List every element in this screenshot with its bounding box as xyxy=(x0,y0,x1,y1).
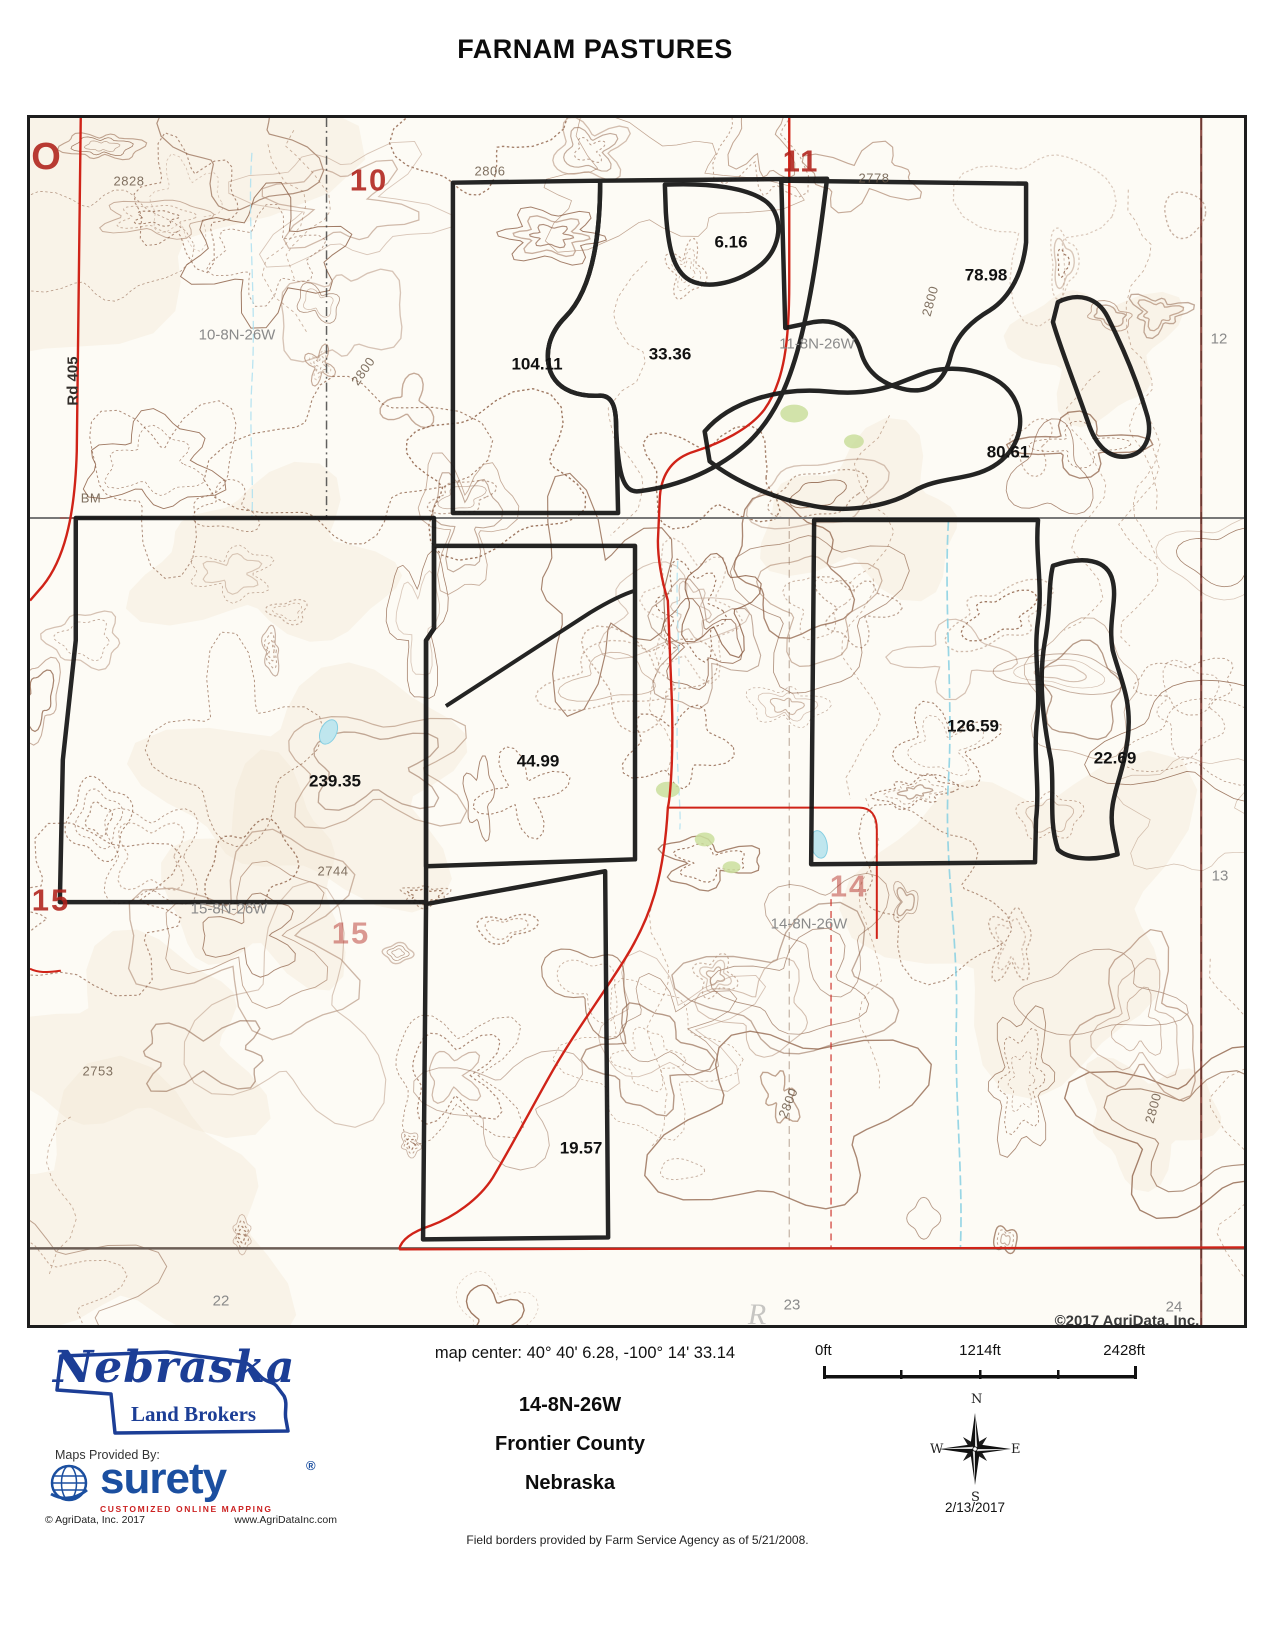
acreage-label: 80.61 xyxy=(987,444,1030,461)
elev-label: 2744 xyxy=(318,865,349,878)
nebraska-land-brokers-logo: Nebraska Land Brokers xyxy=(45,1340,330,1446)
map-label-layer: 104.1133.366.1678.9880.61126.5922.6944.9… xyxy=(30,118,1244,1325)
secnum-label: O xyxy=(31,138,63,176)
township-label: 15-8N-26W xyxy=(191,902,268,917)
acreage-label: 78.98 xyxy=(965,267,1008,284)
scale-label-max: 2428ft xyxy=(1103,1342,1145,1359)
township-label: 10-8N-26W xyxy=(199,328,276,343)
agridata-copyright: © AgriData, Inc. 2017 xyxy=(45,1514,145,1526)
scale-label-0: 0ft xyxy=(815,1342,832,1359)
compass-north-label: N xyxy=(971,1392,982,1407)
elev-label: 2800 xyxy=(776,1086,800,1120)
elev-label: 2828 xyxy=(114,175,145,188)
surety-logo: surety ® xyxy=(48,1462,338,1504)
scale-bar: 0ft 1214ft 2428ft xyxy=(815,1342,1145,1388)
acreage-label: 19.57 xyxy=(560,1140,603,1157)
secnum-label: 15 xyxy=(332,918,370,949)
surety-tagline: CUSTOMIZED ONLINE MAPPING xyxy=(100,1504,273,1514)
township-label: 14-8N-26W xyxy=(771,917,848,932)
location-block: 14-8N-26W Frontier County Nebraska xyxy=(420,1394,720,1511)
scale-label-mid: 1214ft xyxy=(959,1342,1001,1359)
map-date: 2/13/2017 xyxy=(915,1500,1035,1515)
scale-bar-graphic xyxy=(815,1364,1145,1382)
compass-star-icon xyxy=(930,1392,1020,1504)
field-borders-footnote: Field borders provided by Farm Service A… xyxy=(0,1533,1275,1547)
nebraska-logo-subtitle: Land Brokers xyxy=(131,1402,256,1427)
acreage-label: 239.35 xyxy=(309,773,361,790)
compass-rose: N W E S xyxy=(930,1392,1020,1504)
township-label: 22 xyxy=(213,1294,230,1309)
map-frame: 104.1133.366.1678.9880.61126.5922.6944.9… xyxy=(27,115,1247,1328)
township-label: 12 xyxy=(1211,332,1228,347)
township-label: 23 xyxy=(784,1298,801,1313)
secnum-label: 14 xyxy=(830,871,868,902)
township-label: 13 xyxy=(1212,869,1229,884)
elev-label: 2800 xyxy=(920,284,941,317)
acreage-label: 22.69 xyxy=(1094,750,1137,767)
acreage-label: 44.99 xyxy=(517,753,560,770)
secnum-label: 11 xyxy=(783,146,820,177)
globe-icon xyxy=(48,1462,92,1506)
page-title: FARNAM PASTURES xyxy=(0,34,1190,65)
elev-label: 2800 xyxy=(349,355,377,388)
township-range-label: 14-8N-26W xyxy=(420,1394,720,1417)
township-label: 11-8N-26W xyxy=(779,337,855,352)
elev-label: 2806 xyxy=(475,165,506,178)
secnum-label: 15 xyxy=(32,885,70,916)
compass-east-label: E xyxy=(1011,1442,1021,1457)
mapcopy-label: ©2017 AgriData, Inc. xyxy=(1055,1314,1200,1329)
roadlabel-label: Rd 405 xyxy=(66,356,81,405)
county-label: Frontier County xyxy=(420,1433,720,1456)
acreage-label: 33.36 xyxy=(649,346,692,363)
elev-label: BM xyxy=(81,492,102,505)
acreage-label: 6.16 xyxy=(714,234,747,251)
map-center-coordinates: map center: 40° 40' 6.28, -100° 14' 33.1… xyxy=(345,1344,825,1363)
nebraska-logo-name: Nebraska xyxy=(53,1342,295,1393)
compass-west-label: W xyxy=(930,1442,943,1457)
secnum-label: 10 xyxy=(350,165,388,196)
state-label: Nebraska xyxy=(420,1472,720,1495)
surety-brand: surety xyxy=(100,1454,226,1504)
acreage-label: 126.59 xyxy=(947,718,999,735)
elev-label: 2800 xyxy=(1143,1091,1164,1124)
bigletter-label: R xyxy=(748,1300,766,1328)
elev-label: 2778 xyxy=(859,172,890,185)
acreage-label: 104.11 xyxy=(511,356,562,373)
agridata-website: www.AgriDataInc.com xyxy=(234,1514,337,1526)
elev-label: 2753 xyxy=(83,1065,114,1078)
agridata-credits: © AgriData, Inc. 2017 www.AgriDataInc.co… xyxy=(45,1514,337,1526)
registered-trademark-icon: ® xyxy=(306,1458,316,1473)
